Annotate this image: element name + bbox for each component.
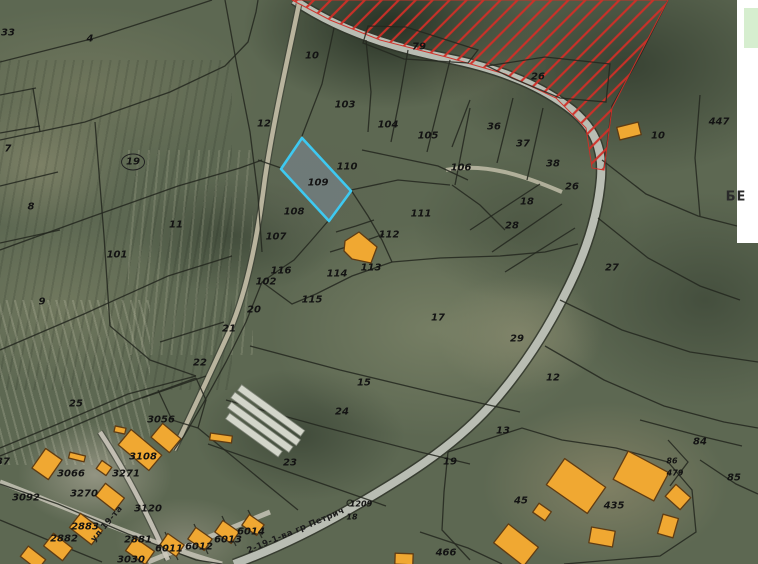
- building: [494, 524, 539, 564]
- building: [114, 426, 126, 434]
- building: [546, 459, 605, 514]
- building: [395, 553, 413, 564]
- building: [69, 452, 86, 462]
- building: [188, 528, 212, 551]
- building: [96, 483, 125, 510]
- building: [44, 533, 73, 560]
- building: [613, 451, 669, 501]
- building: [96, 460, 112, 475]
- building: [589, 527, 615, 547]
- restricted-area-hatch: [292, 0, 668, 170]
- buildings: [20, 122, 690, 564]
- greenhouses: [219, 384, 306, 462]
- building: [20, 546, 45, 564]
- map-vector-overlay: [0, 0, 758, 564]
- building: [210, 433, 233, 443]
- building: [658, 514, 679, 538]
- offmap-green-panel: [744, 8, 758, 48]
- cadastral-map-viewport[interactable]: 3347198111019121079261031041053637381061…: [0, 0, 758, 564]
- highlighted-parcel-109[interactable]: [281, 138, 351, 221]
- building: [665, 484, 691, 509]
- building: [533, 503, 552, 521]
- building: [344, 232, 377, 263]
- building: [617, 122, 641, 140]
- building: [32, 448, 62, 479]
